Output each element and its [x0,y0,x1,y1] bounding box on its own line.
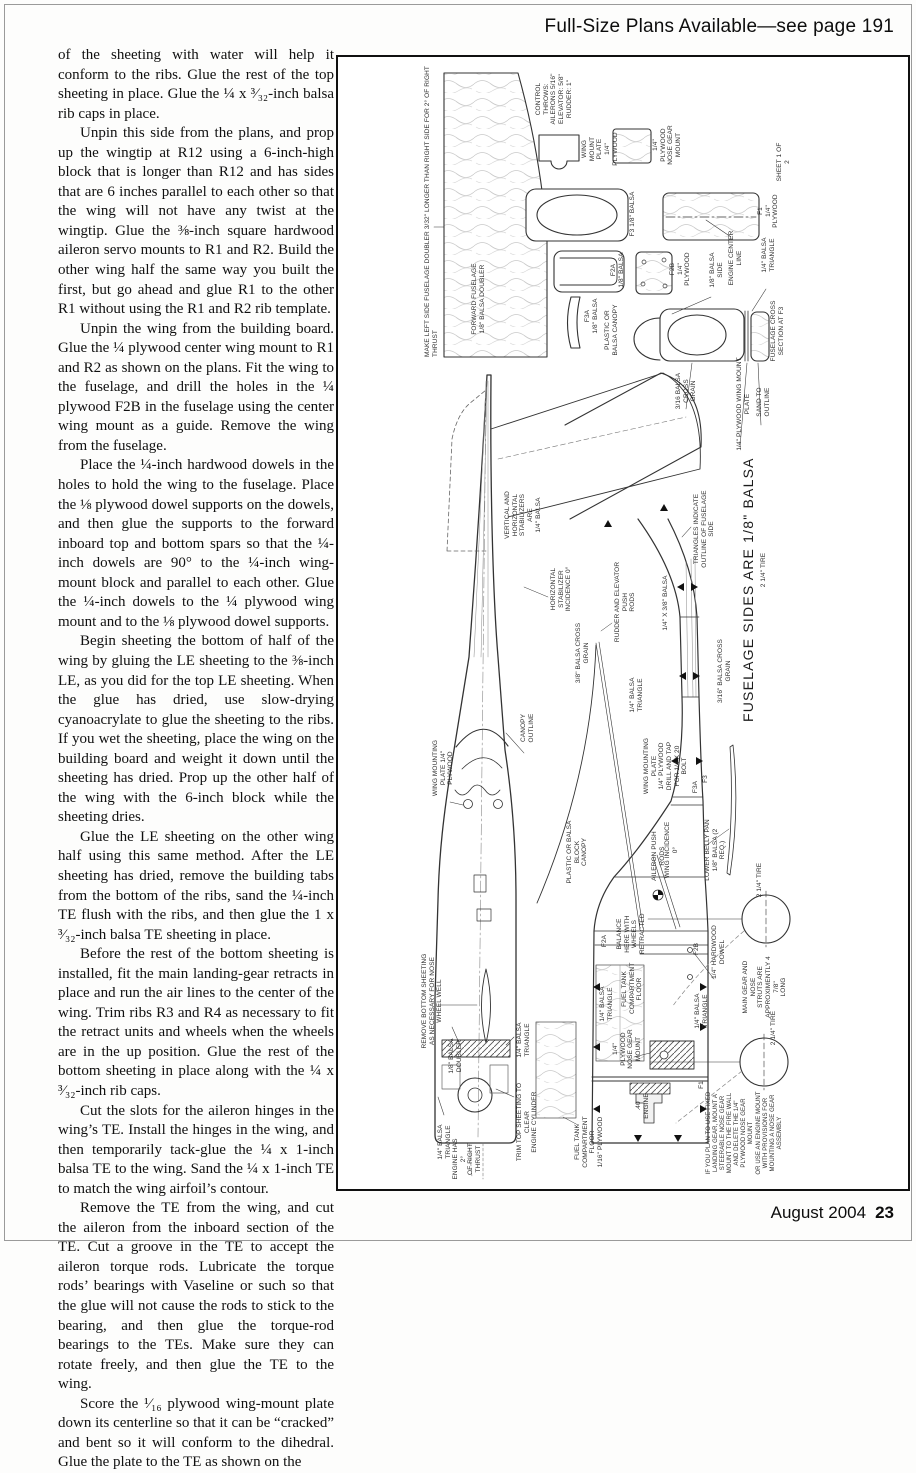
plan-label-plastic-canopy: PLASTIC OR BALSA CANOPY [604,304,619,356]
plan-label-f2b-small: F2B [693,941,701,957]
plan-label-f2a-small: F2A [601,933,609,949]
plan-label-tire-a: 2 1/4" TIRE [760,551,768,589]
plan-label-hardwood-dowel: 1/4" HARDWOOD DOWEL [711,920,726,984]
plan-label-fuselage-sides: FUSELAGE SIDES ARE 1/8" BALSA [740,457,756,722]
article-paragraph: Score the ¹⁄₁₆ plywood wing-mount plate … [58,1395,334,1473]
plan-label-cross-grain-316b: 3/16" BALSA CROSS GRAIN [717,631,732,711]
plan-label-f1-small: F1 [698,1079,706,1091]
plan-label-pushrods: RUDDER AND ELEVATOR PUSH RODS [614,559,637,645]
magazine-page: { "header": { "plans_notice": "Full-Size… [0,0,916,1245]
plan-label-wing-mounting-plate: WING MOUNTING PLATE 1/4" PLYWOOD [432,737,455,799]
plan-label-balsa-triangle-b1: 1/4" BALSA TRIANGLE [516,1008,531,1072]
page-number: 23 [875,1203,894,1222]
plan-label-triangles-indicate: TRIANGLES INDICATE OUTLINE OF FUSELAGE S… [693,489,716,569]
plan-label-cross-grain-38: 3/8" BALSA CROSS GRAIN [575,614,590,692]
plan-label-balsa-14x38: 1/4" X 3/8" BALSA [662,575,670,631]
plan-label-sheet-number: SHEET 1 OF 2 [776,140,791,184]
plan-label-remove-bottom-sheeting: REMOVE BOTTOM SHEETING AS NECESSARY FOR … [421,950,444,1052]
plan-label-balsa-triangle-ft: 1/4" BALSA TRIANGLE [599,986,614,1022]
plan-label-lower-belly-pan: LOWER BELLY PAN 1/8" BALSA (2 REQ.) [704,819,727,881]
plan-label-balsa-triangle-mid: 1/4" BALSA TRIANGLE [629,663,644,727]
plan-label-control-throws: CONTROL THROWS: AILERONS 5/16" ELEVATOR:… [535,67,573,131]
plan-label-wing-mount-plate: WING MOUNT PLATE 1/4" PLYWOOD [581,127,619,171]
plan-label-wing-incidence: WING INCIDENCE 0° [664,821,679,879]
page-footer: August 200423 [771,1203,894,1223]
article-paragraph: Before the rest of the bottom sheeting i… [58,945,334,1101]
plan-label-tire-b: 2 1/4" TIRE [756,861,764,899]
article-paragraph: Begin sheeting the bottom of half of the… [58,632,334,827]
article-paragraph: of the sheeting with water will help it … [58,46,334,124]
plan-label-balsa-triangle-b2: 1/4" BALSA TRIANGLE [437,1110,452,1174]
plan-label-engine-40: .40 ENGINE [635,1088,650,1124]
plan-label-trim-top-sheeting: TRIM TOP SHEETING TO CLEAR ENGINE CYLIND… [516,1077,539,1167]
page-title: Full-Size Plans Available—see page 191 [545,16,894,38]
plan-label-engine-center-line: ENGINE CENTER LINE [728,227,743,289]
article-paragraph: Remove the TE from the wing, and cut the… [58,1199,334,1394]
article-paragraph: Unpin this side from the plans, and prop… [58,124,334,319]
issue-date: August 2004 [771,1203,866,1222]
plan-label-wing-mounting-plate-tap: WING MOUNTING PLATE 1/4" PLYWOOD DRILL A… [643,737,689,795]
plan-label-balsa-side: 1/8" BALSA SIDE [709,245,724,295]
plan-label-balance: BALANCE HERE WITH WHEELS RETRACTED [616,914,647,954]
plan-label-fixed-gear-note: IF YOU PLAN TO USE FIXED LANDING GEAR, M… [706,1087,784,1179]
plan-label-f3a-small: F3A [692,780,700,794]
plan-label-stabilizers: VERTICAL AND HORIZONTAL STABILIZERS ARE … [504,488,542,542]
plan-label-stab-incidence: HORIZONTAL STABILIZER INCIDENCE 0° [550,551,573,627]
plan-label-plastic-block-canopy: PLASTIC OR BALSA BLOCK CANOPY [566,812,589,892]
plan-label-fuel-tank-floor: FUEL TANK COMPARTMENT FLOOR [621,964,644,1014]
plan-label-balsa-triangle-r: 1/4" BALSA TRIANGLE [694,993,709,1029]
plan-label-fuel-tank-floor-ply: FUEL TANK COMPARTMENT FLOOR 1/16" PLYWOO… [574,1110,605,1174]
article-paragraph: Place the ¼-inch hardwood dowels in the … [58,456,334,632]
plan-label-cross-grain-316: 3/16 BALSA CROSS GRAIN [675,370,698,412]
plan-label-cross-section-f3: FUSELAGE CROSS SECTION AT F3 [770,285,785,377]
plan-label-f2a: F2A 1/8" BALSA [610,251,625,289]
article-paragraph: Glue the LE sheeting on the other wing h… [58,828,334,945]
plan-label-nose-gear-mount: 1/4" PLYWOOD NOSE GEAR MOUNT [652,123,683,167]
article-paragraph: Unpin the wing from the building board. … [58,320,334,457]
plan-label-f3: F3 1/8" BALSA [629,191,637,237]
plan-label-canopy-outline: CANOPY OUTLINE [520,700,535,756]
plan-label-make-left-side: MAKE LEFT SIDE FUSELAGE DOUBLER 3/32" LO… [424,57,439,357]
plan-label-sand-to-outline: SAND TO OUTLINE [756,375,771,429]
plan-label-balsa-doubler: 1/8" BALSA DOUBLER [448,1026,463,1086]
plan-label-f3a: F3A 1/8" BALSA [584,298,599,334]
plan-label-balsa-triangle-cs: 1/4" BALSA TRIANGLE [761,225,776,285]
plan-label-wing-mount-plate-cs: 1/4" PLYWOOD WING MOUNT PLATE [736,357,751,451]
article-paragraph: Cut the slots for the aileron hinges in … [58,1102,334,1200]
plan-label-engine-thrust: ENGINE HAS 2° OF RIGHT THRUST [452,1136,483,1182]
plan-label-nose-gear-mount2: 1/4" PLYWOOD NOSE GEAR MOUNT [612,1027,643,1071]
plan-label-main-gear-struts: MAIN GEAR AND NOSE STRUTS ARE APPROXIMEN… [742,952,788,1022]
plan-label-f3-small: F3 [702,773,710,785]
article-text-column: of the sheeting with water will help it … [58,46,334,1473]
plan-label-f2b: F2B 1/4" PLYWOOD [669,247,692,291]
plan-sheet: MAKE LEFT SIDE FUSELAGE DOUBLER 3/32" LO… [336,55,910,1191]
plan-label-forward-fuselage: FORWARD FUSELAGE 1/8" BALSA DOUBLER [471,258,486,340]
